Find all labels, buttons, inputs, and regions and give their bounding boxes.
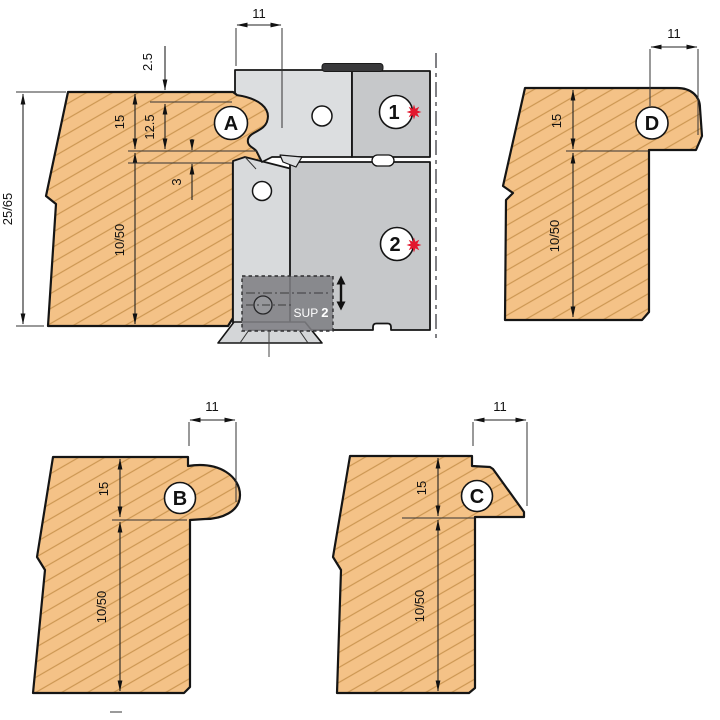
svg-text:15: 15 xyxy=(414,481,429,495)
clamp-wedge-bar xyxy=(322,64,383,72)
svg-text:10/50: 10/50 xyxy=(412,590,427,623)
svg-text:3: 3 xyxy=(169,178,184,185)
drawing-canvas: SUP2 1 2 25/65 xyxy=(0,0,720,720)
label-A: A xyxy=(215,107,248,140)
red-asterisk-icon xyxy=(407,238,422,253)
svg-text:11: 11 xyxy=(252,6,266,21)
label-B: B xyxy=(165,483,196,514)
svg-text:C: C xyxy=(470,486,484,508)
svg-text:D: D xyxy=(645,113,659,135)
workpiece-c-section: 11 15 10/50 C xyxy=(333,399,527,693)
svg-text:11: 11 xyxy=(667,26,681,41)
svg-text:10/50: 10/50 xyxy=(547,220,562,253)
svg-text:2.5: 2.5 xyxy=(140,53,155,71)
svg-text:12.5: 12.5 xyxy=(142,114,157,139)
label-D: D xyxy=(636,107,668,139)
svg-text:15: 15 xyxy=(549,114,564,128)
red-asterisk-icon xyxy=(407,105,422,120)
workpiece-b-section: 11 15 10/50 B xyxy=(33,399,240,693)
joint-slot xyxy=(372,155,394,166)
label-C: C xyxy=(462,481,493,512)
cutter-head-assembly: SUP2 1 2 xyxy=(218,53,436,357)
svg-text:2: 2 xyxy=(389,234,400,256)
svg-text:A: A xyxy=(224,113,238,135)
wood-profile-b xyxy=(33,457,240,693)
svg-text:10/50: 10/50 xyxy=(94,591,109,624)
svg-text:15: 15 xyxy=(96,482,111,496)
svg-text:11: 11 xyxy=(493,399,507,414)
sup2-label: SUP2 xyxy=(294,305,329,320)
technical-drawing-page: SUP2 1 2 25/65 xyxy=(0,0,720,720)
counter-knife-hole xyxy=(253,182,272,201)
svg-text:15: 15 xyxy=(112,115,127,129)
svg-text:B: B xyxy=(173,488,187,510)
svg-text:25/65: 25/65 xyxy=(0,193,15,226)
sup2-adjustment-zone: SUP2 xyxy=(242,276,333,331)
svg-text:1: 1 xyxy=(388,102,399,124)
profile-knife-hole xyxy=(312,106,332,126)
workpiece-d-section: 11 15 10/50 D xyxy=(503,26,702,320)
svg-text:10/50: 10/50 xyxy=(112,224,127,257)
wood-profile-d xyxy=(503,88,702,320)
svg-text:11: 11 xyxy=(205,399,219,414)
